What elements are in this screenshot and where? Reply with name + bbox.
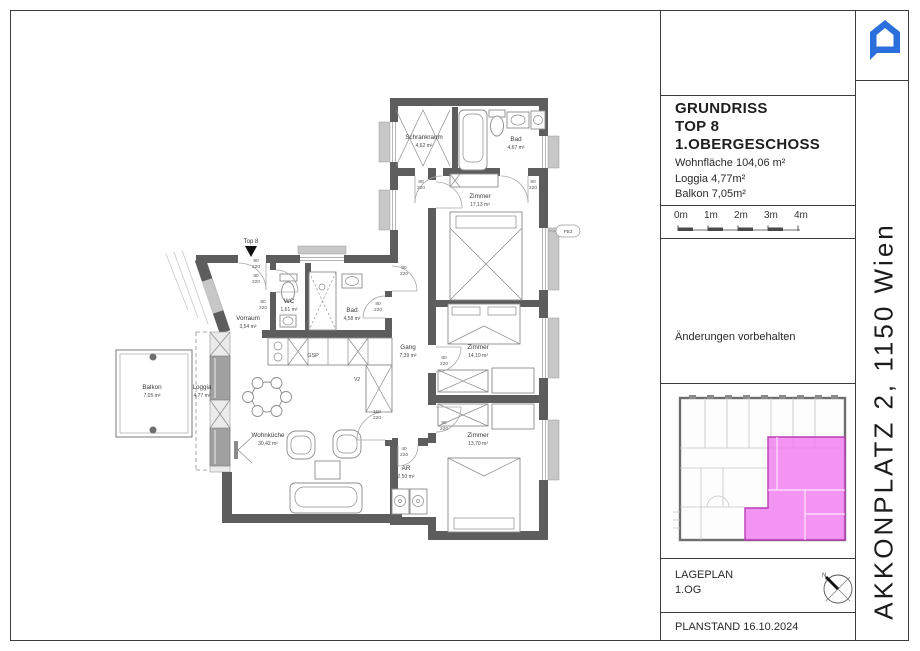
bedroom3-furniture (438, 404, 534, 532)
room-area: 7,39 m² (400, 353, 417, 359)
door-dim: 80 (441, 355, 447, 361)
window-east-1 (539, 136, 559, 168)
door-dim: 90 (253, 258, 259, 264)
room-area: 14,10 m² (468, 353, 488, 359)
room-label: Schrankraum (405, 134, 442, 141)
room-label: Bad (510, 136, 522, 143)
siteplan-floor: 1.OG (675, 583, 733, 598)
room-label: Balkon (142, 384, 162, 391)
room-label: Zimmer (467, 432, 488, 439)
room-label: Wohnküche (251, 432, 285, 439)
facade-label: FB3 (564, 229, 573, 235)
door-dim: 220 (440, 361, 448, 367)
window-east-3 (539, 318, 559, 378)
bed (450, 212, 522, 300)
room-area: 7,05 m² (144, 393, 161, 399)
plan-date: PLANSTAND 16.10.2024 (675, 620, 798, 635)
scale-tick-label: 3m (764, 210, 778, 221)
door-dim: 80 (530, 179, 536, 185)
company-logo-icon (864, 16, 904, 64)
balcony-area-value: Balkon 7,05m² (675, 187, 785, 203)
loggia-window-wall (210, 332, 230, 472)
plan-sheet: Top 8 FB3 Schrankraum 4,62 m² Bad 4,67 m… (0, 0, 920, 651)
room-area: 2,50 m² (398, 474, 415, 480)
room-label: Loggia (193, 384, 212, 391)
svg-text:N: N (822, 573, 826, 579)
window-west-2 (379, 190, 398, 230)
loggia-boundary (196, 332, 210, 470)
site-plan-pilasters (689, 395, 838, 399)
door-dim: 80 (375, 301, 381, 307)
scale-tick-label: 0m (674, 210, 688, 221)
site-plan (665, 390, 850, 552)
room-area: 3,54 m² (240, 324, 257, 330)
room-label: Zimmer (469, 193, 490, 200)
bed (448, 304, 520, 344)
room-label: Vorraum (236, 315, 260, 322)
coffee-table (315, 461, 340, 479)
desk (492, 368, 534, 393)
window-north (298, 246, 346, 263)
room-label: Bad (346, 307, 358, 314)
loggia-area-value: Loggia 4,77m² (675, 172, 785, 188)
door-dim: 220 (440, 426, 448, 432)
plan-type: GRUNDRISS (675, 100, 820, 118)
room-label: WC (284, 298, 295, 305)
door-dim: 80 (441, 420, 447, 426)
door-dim: 220 (259, 305, 267, 311)
room-area: 4,62 m² (416, 143, 433, 149)
bathroom-top-fixtures (459, 110, 545, 170)
tb-line-5 (660, 558, 855, 559)
door-dim: 220 (400, 452, 408, 458)
door-dim: 80 (253, 273, 259, 279)
sideboard (450, 174, 498, 187)
entrance-arrow-icon (245, 246, 257, 257)
door-dim: 220 (417, 185, 425, 191)
scale-tick-label: 1m (704, 210, 718, 221)
balcony-post (150, 354, 157, 361)
door-dim: 40 (401, 446, 407, 452)
room-label: Zimmer (467, 344, 488, 351)
gsp-label: GSP (307, 353, 319, 359)
unit-number: TOP 8 (675, 118, 820, 136)
room-area: 4,58 m² (344, 316, 361, 322)
window-east-2 (539, 228, 559, 290)
room-area: 1,61 m² (281, 307, 298, 313)
room-label: AR (402, 465, 411, 472)
door-dim: 80 (418, 179, 424, 185)
room-area: 17,13 m² (470, 202, 490, 208)
storage-appliances (392, 489, 427, 514)
door-dim: 220 (252, 279, 260, 285)
tv (234, 441, 238, 459)
entrance-marker: Top 8 (244, 239, 259, 257)
door-dim: 110 (373, 409, 381, 415)
door-dim: 80 (260, 299, 266, 305)
room-label: Gang (400, 344, 416, 351)
floor-plan: Top 8 FB3 Schrankraum 4,62 m² Bad 4,67 m… (0, 0, 660, 651)
titleblock-divider (660, 10, 661, 641)
tb-line-6 (660, 612, 855, 613)
disclaimer-note: Änderungen vorbehalten (675, 331, 795, 343)
washing-machine (531, 111, 545, 129)
door-dim: 220 (529, 185, 537, 191)
sidebar-divider (855, 10, 856, 641)
siteplan-caption: LAGEPLAN 1.OG (675, 568, 733, 598)
door-dim: 220 (374, 307, 382, 313)
scale-tick-label: 2m (734, 210, 748, 221)
entrance-label: Top 8 (244, 239, 259, 245)
bed (448, 458, 520, 532)
door-dim: 220 (252, 264, 260, 270)
door-dim: 220 (400, 271, 408, 277)
north-compass-icon: N (818, 569, 858, 609)
room-area: 13,70 m² (468, 441, 488, 447)
titleblock-title: GRUNDRISS TOP 8 1.OBERGESCHOSS (675, 100, 820, 154)
living-furniture (234, 378, 362, 514)
tb-line-1 (660, 95, 855, 96)
balcony-post (150, 427, 157, 434)
floor-name: 1.OBERGESCHOSS (675, 136, 820, 154)
door-dim: 80 (401, 265, 407, 271)
window-west-1 (379, 122, 398, 162)
scale-bar (676, 222, 808, 234)
logo-divider (855, 80, 909, 81)
washbasin (342, 274, 362, 288)
project-address: AKKONPLATZ 2, 1150 Wien (869, 222, 900, 620)
desk (492, 404, 534, 429)
tb-line-4 (660, 383, 855, 384)
tb-line-3 (660, 238, 855, 239)
washbasin (507, 112, 529, 128)
tb-line-2 (660, 205, 855, 206)
window-east-4 (539, 420, 559, 480)
siteplan-label: LAGEPLAN (675, 568, 733, 583)
door-dim: 220 (373, 415, 381, 421)
room-area: 4,67 m² (508, 145, 525, 151)
room-area: 4,77 m² (194, 393, 211, 399)
scale-tick-label: 4m (794, 210, 808, 221)
v2-label: V2 (354, 377, 360, 383)
living-area-value: Wohnfläche 104,06 m² (675, 156, 785, 172)
titleblock-areas: Wohnfläche 104,06 m² Loggia 4,77m² Balko… (675, 156, 785, 203)
room-area: 30,42 m² (258, 441, 278, 447)
